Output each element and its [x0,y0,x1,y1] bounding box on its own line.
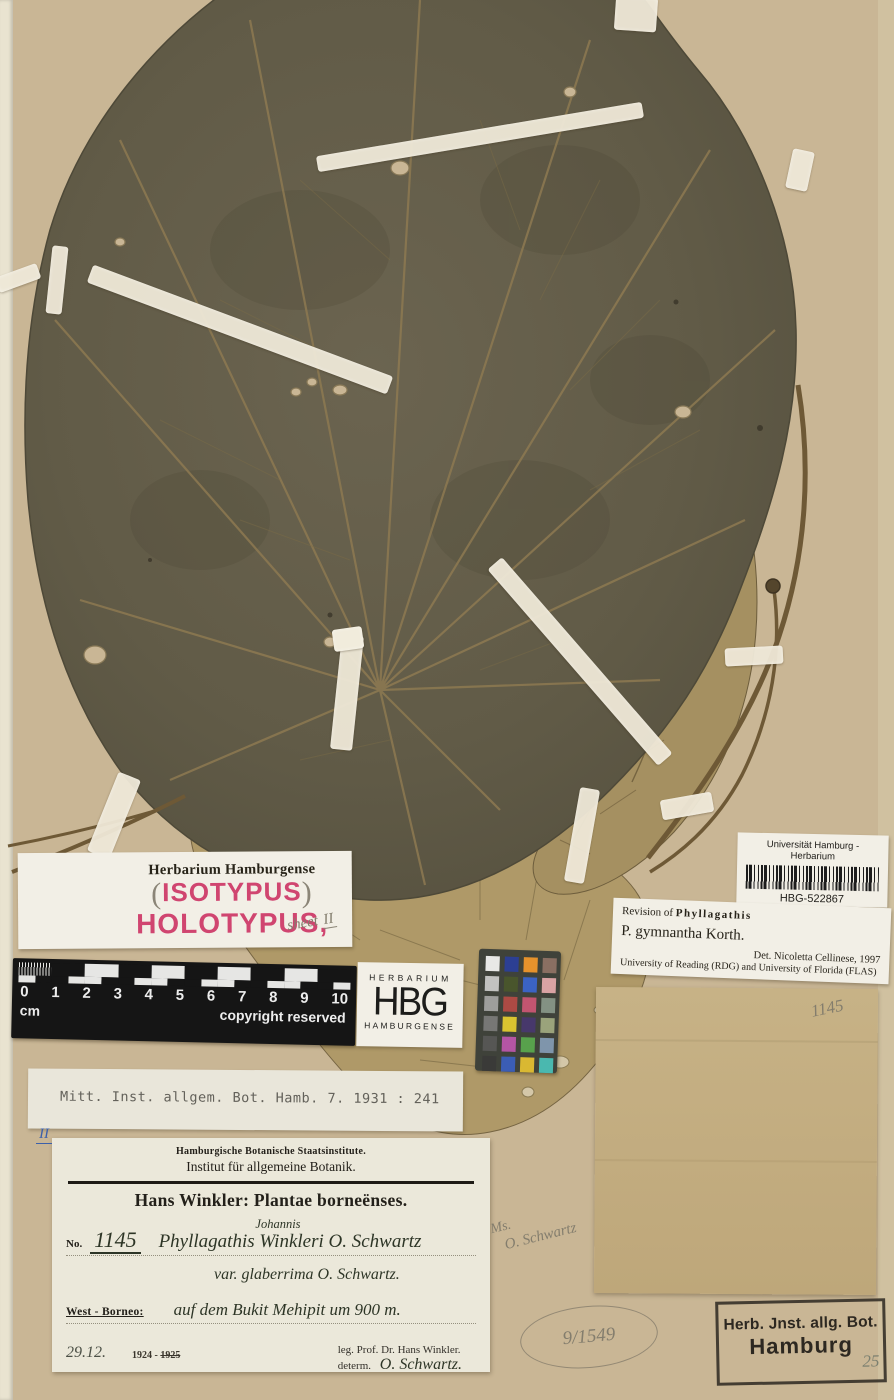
collection-label: Hamburgische Botanische Staatsinstitute.… [52,1138,490,1372]
label-rule [68,1181,474,1184]
barcode-label: Universität Hamburg - Herbarium HBG-5228… [736,832,888,907]
ruler-unit: cm [20,1002,41,1018]
color-swatch [504,976,519,991]
locality-label: West - Borneo: [66,1306,144,1318]
sheet-roman-numeral: II [36,1126,52,1144]
color-swatch [542,978,557,993]
determ-label: determ. [338,1360,371,1372]
barcode-title: Universität Hamburg - Herbarium [744,839,881,864]
institute-line2: Institut für allgemeine Botanik. [66,1159,476,1175]
color-swatch [521,1037,536,1052]
stem-bud [766,579,780,593]
stamp-pencil-number: 25 [862,1351,879,1371]
tape-strip [614,0,658,32]
collection-number-hand: 1145 [90,1227,140,1254]
number-name-row: No. 1145 Phyllagathis JohannisWinkleri O… [66,1227,476,1256]
color-swatch [523,957,538,972]
color-swatch [483,1016,498,1031]
species-name-hand: Phyllagathis JohannisWinkleri O. Schwart… [159,1231,422,1252]
stamp-line2: Hamburg [719,1331,884,1360]
color-swatch [485,976,500,991]
institute-line1: Hamburgische Botanische Staatsinstitute. [66,1146,476,1157]
color-swatch [540,1038,555,1053]
color-swatch [483,1036,498,1051]
variety-hand: var. glaberrima O. Schwartz. [214,1266,476,1284]
barcode-graphic [746,865,879,892]
series-title: Hans Winkler: Plantae borneënses. [66,1190,476,1211]
collector-line: leg. Prof. Dr. Hans Winkler. [338,1344,462,1356]
collector-block: leg. Prof. Dr. Hans Winkler. determ. O. … [338,1344,462,1374]
color-swatch [539,1058,554,1073]
color-swatch [522,997,537,1012]
date-hand: 29.12. [66,1344,106,1362]
isotypus-stamp: (ISOTYPUS) [122,878,342,910]
color-swatch [541,998,556,1013]
color-swatch [540,1018,555,1033]
tape-strip [725,645,784,666]
inserted-name: Johannis [255,1217,300,1232]
color-swatch [520,1057,535,1072]
color-swatch [485,956,500,971]
locality-row: West - Borneo: auf dem Bukit Mehipit um … [66,1300,476,1324]
color-swatch [503,996,518,1011]
hbg-logo-acronym: HBG [361,982,459,1022]
color-swatch [542,958,557,973]
publication-strip: Mitt. Inst. allgem. Bot. Hamb. 7. 1931 :… [28,1068,463,1131]
pencil-paren: ) [302,876,313,909]
revision-label: Revision of Phyllagathis P. gymnantha Ko… [611,898,892,985]
color-swatch [502,1036,517,1051]
color-swatch [523,977,538,992]
hbg-logo-label: HERBARIUM HBG HAMBURGENSE [356,962,463,1048]
herbarium-sheet: 1145 Herbarium Hamburgense (ISOTYPUS) HO… [0,0,894,1400]
date-printed: 1924 - 1925 [132,1350,180,1361]
date-collector-row: 29.12. 1924 - 1925 leg. Prof. Dr. Hans W… [66,1344,476,1374]
no-label: No. [66,1238,82,1250]
color-swatch [482,1056,497,1071]
pencil-paren: ( [151,877,162,910]
envelope-number-pencil: 1145 [810,996,846,1022]
determ-hand: O. Schwartz. [380,1356,462,1373]
ruler-copyright: copyright reserved [219,1007,345,1026]
tape-strip [332,626,365,652]
envelope-fold [596,1039,878,1043]
color-swatch [521,1017,536,1032]
struck-year: 1925 [160,1350,180,1361]
type-status-label: Herbarium Hamburgense (ISOTYPUS) HOLOTYP… [18,851,353,949]
institution-stamp: Herb. Jnst. allg. Bot. Hamburg 25 [715,1298,887,1386]
color-swatch [502,1016,517,1031]
scale-bar: 012345678910 cm copyright reserved [11,958,357,1046]
color-calibration-chart [475,949,561,1074]
stamp-line1: Herb. Jnst. allg. Bot. [718,1313,882,1334]
locality-hand: auf dem Bukit Mehipit um 900 m. [174,1300,401,1319]
color-swatch [504,957,519,972]
color-swatch [501,1056,516,1071]
color-swatch [484,996,499,1011]
specimen-envelope: 1145 [594,987,878,1295]
envelope-fold [595,1159,877,1163]
